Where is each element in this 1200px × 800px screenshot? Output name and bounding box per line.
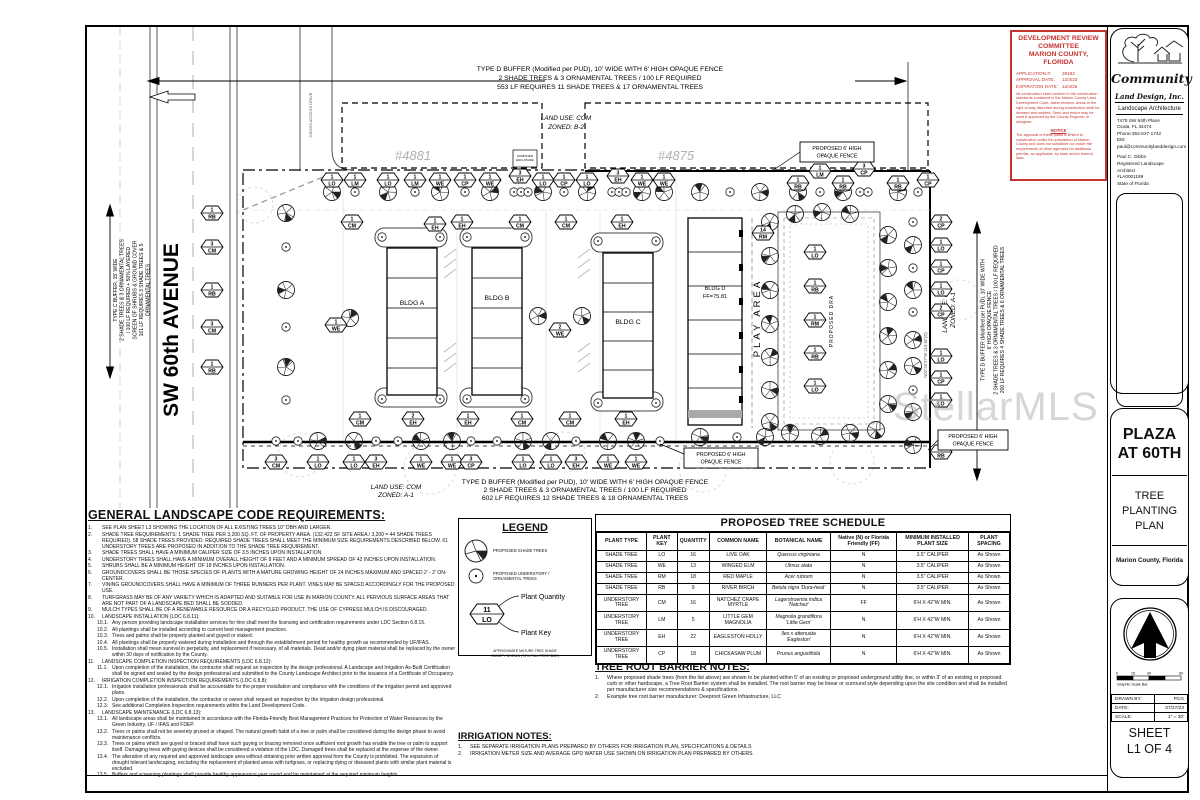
firm-logo-icon <box>1114 32 1186 68</box>
drc-approval-stamp: DEVELOPMENT REVIEWCOMMITTEEMARION COUNTY… <box>1010 30 1107 181</box>
firm-name2: Land Design, Inc. <box>1115 92 1184 103</box>
plant-key: 1EH <box>615 412 637 427</box>
svg-text:1: 1 <box>414 175 417 181</box>
svg-text:CM: CM <box>348 224 356 230</box>
svg-text:CM: CM <box>208 329 216 335</box>
svg-text:1: 1 <box>663 175 666 181</box>
svg-text:3: 3 <box>863 164 866 170</box>
svg-text:LO: LO <box>482 617 492 624</box>
street-label: SW 60th AVENUE <box>160 243 183 417</box>
irrigation-item: 2.IRRIGATION METER SIZE AND AVERAGE GPD … <box>458 751 803 757</box>
requirement-item: 10.2.All plantings shall be installed ac… <box>88 627 456 633</box>
svg-text:11: 11 <box>483 607 491 614</box>
svg-text:LO: LO <box>937 291 944 297</box>
svg-text:1: 1 <box>565 217 568 223</box>
svg-text:RM: RM <box>811 322 819 328</box>
plant-key: 1LO <box>804 245 826 260</box>
svg-text:1: 1 <box>351 217 354 223</box>
svg-text:1: 1 <box>211 362 214 368</box>
legend-title: LEGEND <box>463 522 587 534</box>
svg-text:CM: CM <box>566 421 574 427</box>
plant-key: 1RB <box>201 360 223 375</box>
svg-text:RB: RB <box>208 215 216 221</box>
plant-key: 1RB <box>804 346 826 361</box>
svg-text:TYPE D BUFFER (Modified per PU: TYPE D BUFFER (Modified per PUD), 10' WI… <box>981 259 987 381</box>
requirement-item: 11.LANDSCAPE COMPLETION INSPECTION REQUI… <box>88 659 456 665</box>
requirement-item: 12.1.Irrigation installation professiona… <box>88 684 456 696</box>
schedule-head: PLANT TYPEPLANT KEYQUANTITYCOMMON NAMEBO… <box>597 533 1010 551</box>
svg-text:WE: WE <box>436 182 445 188</box>
bldg-a-label: BLDG A <box>400 300 425 307</box>
svg-text:LM: LM <box>411 182 419 188</box>
schedule-row: UNDERSTORY TREEEH22EAGLESTON HOLLYIlex x… <box>597 629 1010 646</box>
buffer-left-text: TYPE C BUFFER, 15' WIDE 2 SHADE TREES & … <box>113 238 152 340</box>
svg-text:1: 1 <box>550 457 553 463</box>
svg-text:1: 1 <box>940 373 943 379</box>
buffer-bottom-line2: 2 SHADE TREES & 3 ORNAMENTAL TREES / 100… <box>484 487 687 494</box>
root-barrier-title: TREE ROOT BARRIER NOTES: <box>595 661 1011 673</box>
plant-key: 1LO <box>930 349 952 364</box>
plant-key: 1LO <box>343 455 365 470</box>
svg-text:OPAQUE FENCE: OPAQUE FENCE <box>817 154 858 160</box>
svg-text:1: 1 <box>451 457 454 463</box>
svg-text:15: 15 <box>1131 672 1135 676</box>
requirements-title: GENERAL LANDSCAPE CODE REQUIREMENTS: <box>88 508 456 522</box>
requirement-item: 13.2.Trees or palms shall not be severel… <box>88 729 456 741</box>
svg-text:WE: WE <box>632 464 641 470</box>
legend-plant-key-sample: 11 LO Plant Quantity Plant Key <box>463 588 587 640</box>
fence-label-bottom: PROPOSED 6' HIGH OPAQUE FENCE <box>660 444 758 468</box>
plant-key: 1LO <box>512 455 534 470</box>
svg-text:1: 1 <box>621 217 624 223</box>
svg-text:Graphic Scale Bar: Graphic Scale Bar <box>1117 683 1149 687</box>
schedule-body: SHADE TREELO16LIVE OAKQuercus virginiana… <box>597 550 1010 663</box>
svg-text:EH: EH <box>409 421 416 427</box>
requirement-item: 13.1.All landscape areas shall be mainta… <box>88 716 456 728</box>
svg-text:1: 1 <box>641 175 644 181</box>
schedule-row: SHADE TREELO16LIVE OAKQuercus virginiana… <box>597 550 1010 561</box>
project-title-block: PLAZAAT 60TH TREEPLANTINGPLAN Marion Cou… <box>1110 408 1189 586</box>
svg-text:WE: WE <box>486 182 495 188</box>
svg-text:3: 3 <box>275 457 278 463</box>
legend-qty-label: Plant Quantity <box>521 594 565 601</box>
land-use-top-1: LAND USE: COM <box>541 115 592 122</box>
svg-text:EH: EH <box>618 224 625 230</box>
svg-text:1: 1 <box>814 381 817 387</box>
stamp-approval: APPROVAL DATE:12/4/23 <box>1016 77 1101 82</box>
svg-text:1: 1 <box>940 284 943 290</box>
svg-text:SCREEN OF SHRUBS & GROUND COVE: SCREEN OF SHRUBS & GROUND COVER <box>133 240 139 339</box>
plant-key: 1RM <box>804 313 826 328</box>
requirement-item: 12.2.Upon completion of the installation… <box>88 697 456 703</box>
requirement-item: 13.5.Buffers and screening plantings sha… <box>88 772 456 778</box>
plant-key: 1RB <box>804 279 826 294</box>
plant-key: 1EH <box>451 215 473 230</box>
svg-text:RB: RB <box>811 355 819 361</box>
svg-text:1: 1 <box>434 219 437 225</box>
plant-key: 3EH <box>565 455 587 470</box>
svg-text:1: 1 <box>522 457 525 463</box>
stamp-notice-body: The approval of these plans is limited t… <box>1016 133 1101 161</box>
requirement-item: 11.1.Upon completion of the installation… <box>88 665 456 677</box>
svg-text:PROPOSED 6' HIGH: PROPOSED 6' HIGH <box>812 146 861 152</box>
plant-key: 1CM <box>509 215 531 230</box>
svg-text:1: 1 <box>940 395 943 401</box>
north-scale-block: 0 15 30 60 Graphic Scale Bar DRAWN BY:PC… <box>1110 598 1189 778</box>
plant-key: 1CM <box>555 215 577 230</box>
svg-text:CP: CP <box>467 464 475 470</box>
requirement-item: 10.5.Installation shall mean survival in… <box>88 646 456 658</box>
stamp-body: All construction shall conform to the co… <box>1016 92 1101 125</box>
north-arrow-icon <box>1114 603 1186 665</box>
plant-key: 1CM <box>511 412 533 427</box>
plant-key: 1WE <box>429 173 451 188</box>
svg-text:/ 100 LF REQUIRED + 50% LAYERE: / 100 LF REQUIRED + 50% LAYERED <box>126 247 132 334</box>
svg-text:2: 2 <box>940 217 943 223</box>
plant-key: 1RB <box>201 206 223 221</box>
svg-text:EH: EH <box>614 178 621 184</box>
plant-key: 1LO <box>930 238 952 253</box>
bearing-label: N00°03'27"W 219.82'(D) <box>923 332 928 378</box>
svg-text:LO: LO <box>384 182 391 188</box>
svg-text:1: 1 <box>814 348 817 354</box>
shade-tree-icon <box>463 538 489 564</box>
svg-text:WE: WE <box>332 327 341 333</box>
svg-text:CP: CP <box>860 171 868 177</box>
plant-key: 2WE <box>549 323 571 338</box>
plant-key: 2CP <box>930 215 952 230</box>
plant-key: 3CM <box>201 240 223 255</box>
plant-key: 14RM <box>752 226 774 241</box>
svg-text:WE: WE <box>638 182 647 188</box>
svg-text:1: 1 <box>387 175 390 181</box>
svg-text:1: 1 <box>317 457 320 463</box>
svg-text:3: 3 <box>617 171 620 177</box>
requirement-item: 6.GROUNDCOVERS SHALL BE THOSE SPECIES OF… <box>88 570 456 582</box>
plant-key: 1LO <box>321 173 343 188</box>
svg-text:1: 1 <box>359 414 362 420</box>
svg-text:LO: LO <box>937 358 944 364</box>
buffer-bottom-line3: 602 LF REQUIRES 12 SHADE TREES & 18 ORNA… <box>482 495 689 502</box>
svg-text:6' HIGH OPAQUE FENCE: 6' HIGH OPAQUE FENCE <box>987 290 993 349</box>
bldg-d-label: BLDG D <box>705 286 726 292</box>
plant-key: 3CP <box>460 455 482 470</box>
svg-text:1: 1 <box>521 414 524 420</box>
svg-text:CP: CP <box>937 269 945 275</box>
svg-text:1: 1 <box>335 320 338 326</box>
svg-text:LM: LM <box>351 182 359 188</box>
firm-tagline: Landscape Architecture <box>1116 106 1183 115</box>
requirement-item: 3.SHADE TREES SHALL HAVE A MINIMUM CALIP… <box>88 550 456 556</box>
svg-text:CP: CP <box>937 313 945 319</box>
requirement-item: 5.SHRUBS SHALL BE A MINIMUM HEIGHT OF 18… <box>88 563 456 569</box>
plant-key: 1WE <box>325 318 347 333</box>
requirement-item: 2.SHADE TREE REQUIREMENTS: 1 SHADE TREE … <box>88 532 456 550</box>
svg-text:EH: EH <box>464 421 471 427</box>
svg-text:LO: LO <box>314 464 321 470</box>
stamp-application: APPLICATION #:28193 <box>1016 71 1101 76</box>
svg-text:WE: WE <box>660 182 669 188</box>
svg-text:TYPE C BUFFER, 15' WIDE: TYPE C BUFFER, 15' WIDE <box>113 258 119 322</box>
svg-text:1: 1 <box>940 240 943 246</box>
requirement-item: 13.3.Trees or palms which are guyed or b… <box>88 741 456 753</box>
requirement-item: 8.TURFGRASS MAY BE OF ANY VARIETY WHICH … <box>88 595 456 607</box>
bldg-b-label: BLDG B <box>485 295 510 302</box>
plant-key: 1WE <box>597 455 619 470</box>
plant-key: 1RB <box>201 283 223 298</box>
svg-text:1: 1 <box>897 178 900 184</box>
requirement-item: 13.LANDSCAPE MAINTENANCE (LDC 6.8.13): <box>88 710 456 716</box>
svg-text:1: 1 <box>353 457 356 463</box>
stamp-title: DEVELOPMENT REVIEWCOMMITTEEMARION COUNTY… <box>1016 35 1101 68</box>
requirement-item: 10.1.Any person providing landscape inst… <box>88 620 456 626</box>
svg-text:CM: CM <box>272 464 280 470</box>
firm-architect: Paul C. Gibbs Registered Landscape Archi… <box>1111 150 1188 187</box>
svg-text:EH: EH <box>572 464 579 470</box>
buffer-bottom-line1: TYPE D BUFFER (Modified per PUD), 10' WI… <box>462 479 709 486</box>
svg-text:EH: EH <box>372 464 379 470</box>
svg-text:RM: RM <box>759 235 767 241</box>
svg-text:3: 3 <box>211 242 214 248</box>
svg-text:LO: LO <box>937 247 944 253</box>
plant-key: 1CP <box>930 260 952 275</box>
plant-key: 1LO <box>804 379 826 394</box>
svg-text:1: 1 <box>542 175 545 181</box>
svg-text:1: 1 <box>563 175 566 181</box>
plant-key: 1LM <box>344 173 366 188</box>
svg-text:1: 1 <box>439 175 442 181</box>
requirement-item: 13.4.The alteration of any required and … <box>88 754 456 772</box>
svg-text:LO: LO <box>539 182 546 188</box>
plant-key: 1LM <box>404 173 426 188</box>
date-row: DATE:07/27/23 <box>1112 704 1188 713</box>
plant-key: 2CP <box>930 304 952 319</box>
irrigation-section: IRRIGATION NOTES: 1.SEE SEPARATE IRRIGAT… <box>458 731 803 757</box>
plant-key: 3EH <box>607 169 629 184</box>
requirement-item: 10.3.Trees and palms shall be properly p… <box>88 633 456 639</box>
svg-text:RB: RB <box>937 454 945 460</box>
svg-text:CP: CP <box>937 224 945 230</box>
svg-text:EH: EH <box>458 224 465 230</box>
svg-text:OPAQUE FENCE: OPAQUE FENCE <box>701 460 742 466</box>
existing-feature-line <box>243 172 335 210</box>
firm-name: Community <box>1111 73 1188 86</box>
schedule-row: SHADE TREERM18RED MAPLEAcer rubrumN3.5" … <box>597 572 1010 583</box>
svg-text:1: 1 <box>354 175 357 181</box>
svg-text:LM: LM <box>816 173 824 179</box>
svg-text:200 LF REQUIRES 4 SHADE TREES: 200 LF REQUIRES 4 SHADE TREES & 6 ORNAME… <box>1000 246 1006 393</box>
svg-text:RB: RB <box>208 292 216 298</box>
svg-text:2: 2 <box>412 414 415 420</box>
svg-text:CM: CM <box>562 224 570 230</box>
project-name: PLAZAAT 60TH <box>1112 409 1187 476</box>
irrigation-list: 1.SEE SEPARATE IRRIGATION PLANS PREPARED… <box>458 744 803 757</box>
requirement-item: 10.LANDSCAPE INSTALLATION (LDC 6.8.11): <box>88 614 456 620</box>
cross-drive-label: CROSS ACCESS DRIVE <box>308 92 313 137</box>
svg-text:EH: EH <box>622 421 629 427</box>
svg-text:1: 1 <box>940 351 943 357</box>
project-location: Marion County, Florida <box>1111 546 1188 564</box>
requirement-item: 9.MULCH TYPES SHALL BE OF A RENEWABLE RE… <box>88 607 456 613</box>
svg-text:EH: EH <box>431 226 438 232</box>
plant-key: 1EH <box>457 412 479 427</box>
legend-understory-row: PROPOSED UNDERSTORY / ORNAMENTAL TREES <box>463 567 587 585</box>
svg-text:EH: EH <box>516 178 523 184</box>
svg-text:WE: WE <box>556 332 565 338</box>
schedule-row: UNDERSTORY TREELM5LITTLE GEM MAGNOLIAMag… <box>597 612 1010 629</box>
plant-key: 1CM <box>341 215 363 230</box>
drawn-by-row: DRAWN BY:PCG <box>1112 695 1188 704</box>
legend-shade-row: PROPOSED SHADE TREES <box>463 538 587 564</box>
graphic-scale-bar: 0 15 30 60 Graphic Scale Bar <box>1114 670 1186 687</box>
svg-text:3: 3 <box>470 457 473 463</box>
plant-key: 1LO <box>307 455 329 470</box>
root-barrier-section: TREE ROOT BARRIER NOTES: 1.Where propose… <box>595 661 1011 701</box>
svg-text:CM: CM <box>356 421 364 427</box>
plant-key: 1LO <box>930 393 952 408</box>
svg-text:14: 14 <box>760 228 766 234</box>
legend-understory-label: PROPOSED UNDERSTORY / ORNAMENTAL TREES <box>493 571 563 582</box>
svg-text:1: 1 <box>211 285 214 291</box>
plant-key: 3CM <box>201 320 223 335</box>
legend-shade-label: PROPOSED SHADE TREES <box>493 548 563 553</box>
plant-key: 1WE <box>625 455 647 470</box>
plant-key: 1CM <box>559 412 581 427</box>
svg-text:CP: CP <box>937 380 945 386</box>
building-4881-outline <box>342 103 542 168</box>
svg-text:WE: WE <box>448 464 457 470</box>
svg-text:CP: CP <box>461 182 469 188</box>
svg-text:1: 1 <box>489 175 492 181</box>
root-barrier-item: 2.Example tree root barrier manufacturer… <box>595 694 1011 700</box>
svg-text:1: 1 <box>814 281 817 287</box>
irrigation-title: IRRIGATION NOTES: <box>458 731 803 742</box>
plant-key: 1CP <box>930 371 952 386</box>
plant-key: 3CM <box>265 455 287 470</box>
svg-text:CP: CP <box>560 182 568 188</box>
svg-text:60: 60 <box>1179 672 1183 676</box>
tree-schedule: PROPOSED TREE SCHEDULE PLANT TYPEPLANT K… <box>595 514 1011 665</box>
plant-key: 1LO <box>377 173 399 188</box>
irrigation-item: 1.SEE SEPARATE IRRIGATION PLANS PREPARED… <box>458 744 803 750</box>
requirement-item: 1.SEE PLAN SHEET L3 SHOWING THE LOCATION… <box>88 525 456 531</box>
svg-text:1: 1 <box>464 175 467 181</box>
plant-key: 1WE <box>410 455 432 470</box>
requirements-list: 1.SEE PLAN SHEET L3 SHOWING THE LOCATION… <box>88 525 456 778</box>
drawing-info-table: DRAWN BY:PCG DATE:07/27/23 SCALE:1" = 30… <box>1111 694 1188 722</box>
land-use-top-2: ZONED: B-2 <box>547 124 584 131</box>
svg-text:RB: RB <box>811 288 819 294</box>
svg-text:ORNAMENTAL TREES: ORNAMENTAL TREES <box>146 263 152 316</box>
svg-text:1: 1 <box>814 315 817 321</box>
svg-text:1: 1 <box>842 178 845 184</box>
svg-text:1: 1 <box>814 247 817 253</box>
plant-key: 3EH <box>365 455 387 470</box>
firm-contact: 7478 SW 64th Place Ocala, FL 34474 Phone… <box>1111 115 1188 151</box>
plant-key: 1CP <box>917 173 939 188</box>
plant-key: 1RB <box>887 176 909 191</box>
requirement-item: 10.4.All plantings shall be properly wat… <box>88 640 456 646</box>
svg-text:CM: CM <box>518 421 526 427</box>
svg-text:PROPOSED 6' HIGH: PROPOSED 6' HIGH <box>696 452 745 458</box>
requirement-item: 12.IRRIGATION COMPLETION INSPECTION REQU… <box>88 678 456 684</box>
plant-key: 1WE <box>479 173 501 188</box>
svg-text:2: 2 <box>940 306 943 312</box>
svg-text:LO: LO <box>811 254 818 260</box>
svg-text:WE: WE <box>604 464 613 470</box>
signature-area <box>1116 193 1183 407</box>
stamp-expiration: EXPIRATION DATE:12/4/25 <box>1016 84 1101 89</box>
svg-text:2: 2 <box>559 325 562 331</box>
svg-text:0: 0 <box>1116 672 1118 676</box>
schedule-row: SHADE TREERB9RIVER BIRCHBetula nigra 'Du… <box>597 584 1010 595</box>
fence-label-right: PROPOSED 6' HIGH OPAQUE FENCE <box>928 430 1008 450</box>
dra-label: PROPOSED DRA <box>829 295 835 347</box>
plant-key: 1CM <box>349 412 371 427</box>
svg-text:RB: RB <box>208 369 216 375</box>
sheet-title: TREEPLANTINGPLAN <box>1112 476 1187 546</box>
svg-text:1: 1 <box>420 457 423 463</box>
general-requirements-section: GENERAL LANDSCAPE CODE REQUIREMENTS: 1.S… <box>88 508 456 778</box>
scale-row: SCALE:1" = 30' <box>1112 713 1188 722</box>
schedule-row: SHADE TREEWE13WINGED ELMUlmus alataN3.5"… <box>597 561 1010 572</box>
plant-key: 1CP <box>454 173 476 188</box>
svg-text:3: 3 <box>375 457 378 463</box>
svg-text:CP: CP <box>924 182 932 188</box>
root-barrier-item: 1.Where proposed shade trees (from the l… <box>595 675 1011 694</box>
buffer-right-text: TYPE D BUFFER (Modified per PUD), 10' WI… <box>981 245 1007 395</box>
buffer-top-line3: 553 LF REQUIRES 11 SHADE TREES & 17 ORNA… <box>497 84 703 91</box>
svg-text:1: 1 <box>461 217 464 223</box>
svg-text:CM: CM <box>516 224 524 230</box>
svg-text:1: 1 <box>797 178 800 184</box>
plant-key: 3EH <box>509 169 531 184</box>
bldg-d-walk <box>688 410 742 418</box>
svg-text:1: 1 <box>586 175 589 181</box>
requirement-item: 4.UNDERSTORY TREES SHALL HAVE A MINIMUM … <box>88 557 456 563</box>
svg-text:LO: LO <box>811 388 818 394</box>
svg-text:3: 3 <box>575 457 578 463</box>
svg-text:2 SHADE TREES & 3 ORNAMENTAL T: 2 SHADE TREES & 3 ORNAMENTAL TREES <box>120 238 126 340</box>
plant-key: 1LO <box>576 173 598 188</box>
svg-text:1: 1 <box>519 217 522 223</box>
requirement-item: 7.VINING GROUNDCOVERS SHALL HAVE A MINIM… <box>88 582 456 594</box>
plant-key: 1EH <box>424 217 446 232</box>
svg-text:1: 1 <box>927 175 930 181</box>
plant-key: 1CP <box>553 173 575 188</box>
svg-text:1: 1 <box>467 414 470 420</box>
plant-key: 1RB <box>787 176 809 191</box>
svg-text:RB: RB <box>894 185 902 191</box>
plant-key: 1WE <box>653 173 675 188</box>
plant-key: 1LO <box>540 455 562 470</box>
svg-text:LO: LO <box>583 182 590 188</box>
legend-note: APPROXIMATE MATURE TREE SHADECANOPY SHOW… <box>463 649 587 658</box>
svg-text:LO: LO <box>519 464 526 470</box>
svg-text:1: 1 <box>331 175 334 181</box>
understory-tree-icon <box>463 567 489 585</box>
svg-text:1: 1 <box>211 208 214 214</box>
svg-text:1: 1 <box>940 262 943 268</box>
dumpster-label-2: ENCLOSURE <box>516 158 534 162</box>
svg-text:LO: LO <box>937 402 944 408</box>
svg-text:161 LF REQUIRES 3 SHADE TREES: 161 LF REQUIRES 3 SHADE TREES & 5 <box>139 243 145 336</box>
legend-box: LEGEND PROPOSED SHADE TREES PROPOSED UND… <box>458 518 592 656</box>
plant-key: 1LO <box>532 173 554 188</box>
plant-key: 1LM <box>809 164 831 179</box>
svg-text:1: 1 <box>819 166 822 172</box>
plant-key: 2EH <box>402 412 424 427</box>
